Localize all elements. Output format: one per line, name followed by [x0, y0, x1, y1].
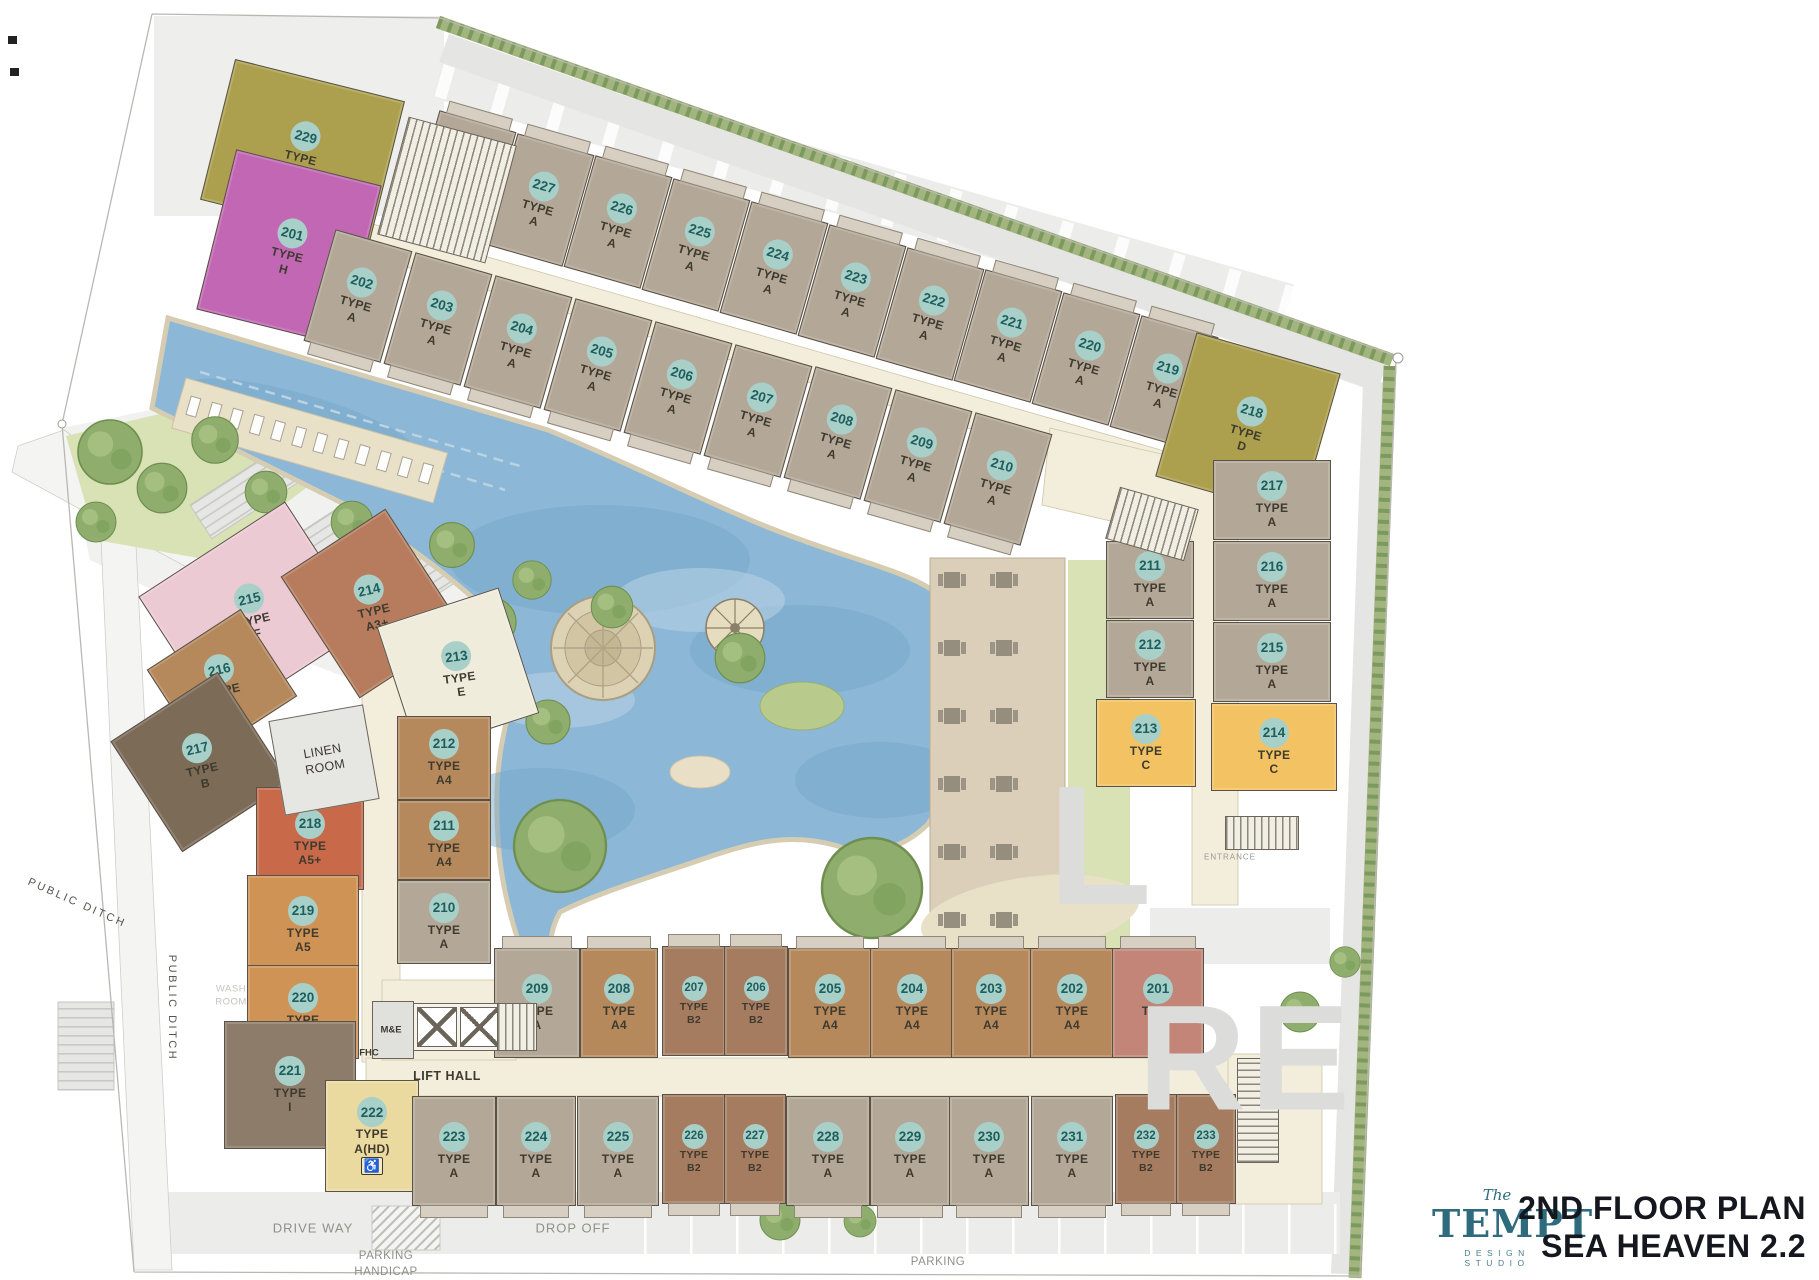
site-label-public-ditch-1: PUBLIC DITCH: [166, 955, 178, 1061]
plan-title-line2: SEA HEAVEN 2.2: [1518, 1228, 1806, 1266]
watermark-letter: RE: [1138, 972, 1354, 1145]
plan-title-line1: 2ND FLOOR PLAN: [1518, 1190, 1806, 1228]
site-label-parking-6: PARKING: [911, 1256, 965, 1268]
site-label-handicap-5: HANDICAP: [354, 1266, 417, 1278]
site-label-lift-hall-7: LIFT HALL: [413, 1069, 481, 1083]
site-label-drop-off-3: DROP OFF: [536, 1221, 611, 1236]
site-label-fhc-9: FHC: [359, 1048, 379, 1059]
site-label-public-ditch-0: PUBLIC DITCH: [26, 876, 128, 930]
watermark-letter: L: [1048, 748, 1156, 944]
site-label-m-e-8: M&E: [380, 1025, 401, 1036]
site-label-wash-11: WASH: [216, 984, 246, 995]
title-block: 2ND FLOOR PLAN SEA HEAVEN 2.2: [1518, 1190, 1806, 1266]
floor-plan-canvas: 229TYPEG201TYPEH228TYPEA227TYPEA226TYPEA…: [0, 0, 1819, 1280]
site-label-parking-4: PARKING: [359, 1250, 413, 1262]
site-label-room-12: ROOM: [215, 997, 247, 1008]
labels-layer: PUBLIC DITCHPUBLIC DITCHDRIVE WAYDROP OF…: [0, 0, 1819, 1280]
site-label-entrance-10: ENTRANCE: [1204, 853, 1256, 862]
site-label-drive-way-2: DRIVE WAY: [273, 1221, 354, 1236]
